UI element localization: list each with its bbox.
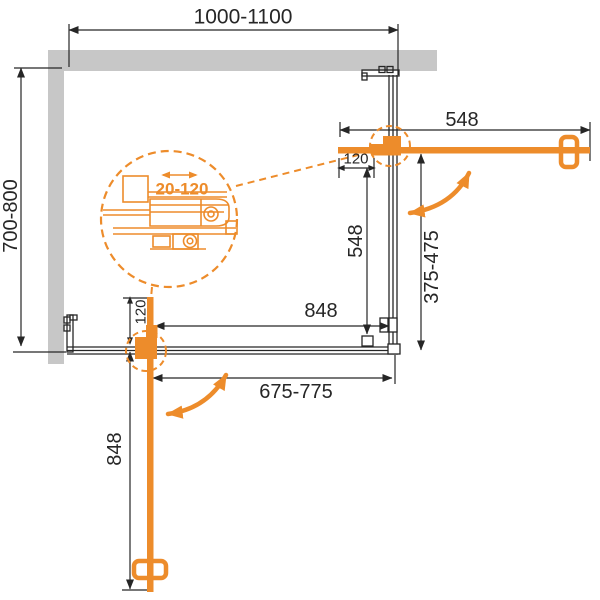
dim-label-side-depth: 700-800 [1, 179, 21, 252]
right-door-hinge [371, 136, 401, 156]
dim-label-right-opening: 375-475 [422, 230, 442, 303]
front-door-swing-arrow [168, 375, 226, 414]
dim-label-right-door-closed: 548 [346, 224, 366, 257]
dim-label-front-door-closed: 848 [304, 301, 337, 321]
wall-left [48, 50, 64, 364]
dim-label-front-hinge-offset: 120 [134, 299, 149, 324]
front-door-hinge [135, 325, 158, 359]
dim-label-right-door-open: 548 [445, 110, 478, 130]
right-fixed-panel [389, 75, 397, 353]
dim-label-top-width: 1000-1100 [194, 7, 293, 28]
right-door-swing-arrow [410, 173, 469, 213]
detail-label-adjustment-range: 20-120 [156, 181, 209, 198]
dimension-lines [13, 24, 590, 590]
shower-enclosure-technical-drawing: 1000-1100 700-800 548 120 548 375-475 84… [0, 0, 600, 600]
bottom-fixed-panel [67, 347, 398, 354]
dim-label-front-opening: 675-775 [259, 382, 332, 402]
dim-label-right-hinge-offset: 120 [343, 152, 368, 167]
dim-label-front-door-open: 848 [105, 432, 125, 465]
drawing-linework [0, 0, 600, 600]
corner-connectors [362, 318, 400, 354]
extension-lines [13, 24, 590, 590]
